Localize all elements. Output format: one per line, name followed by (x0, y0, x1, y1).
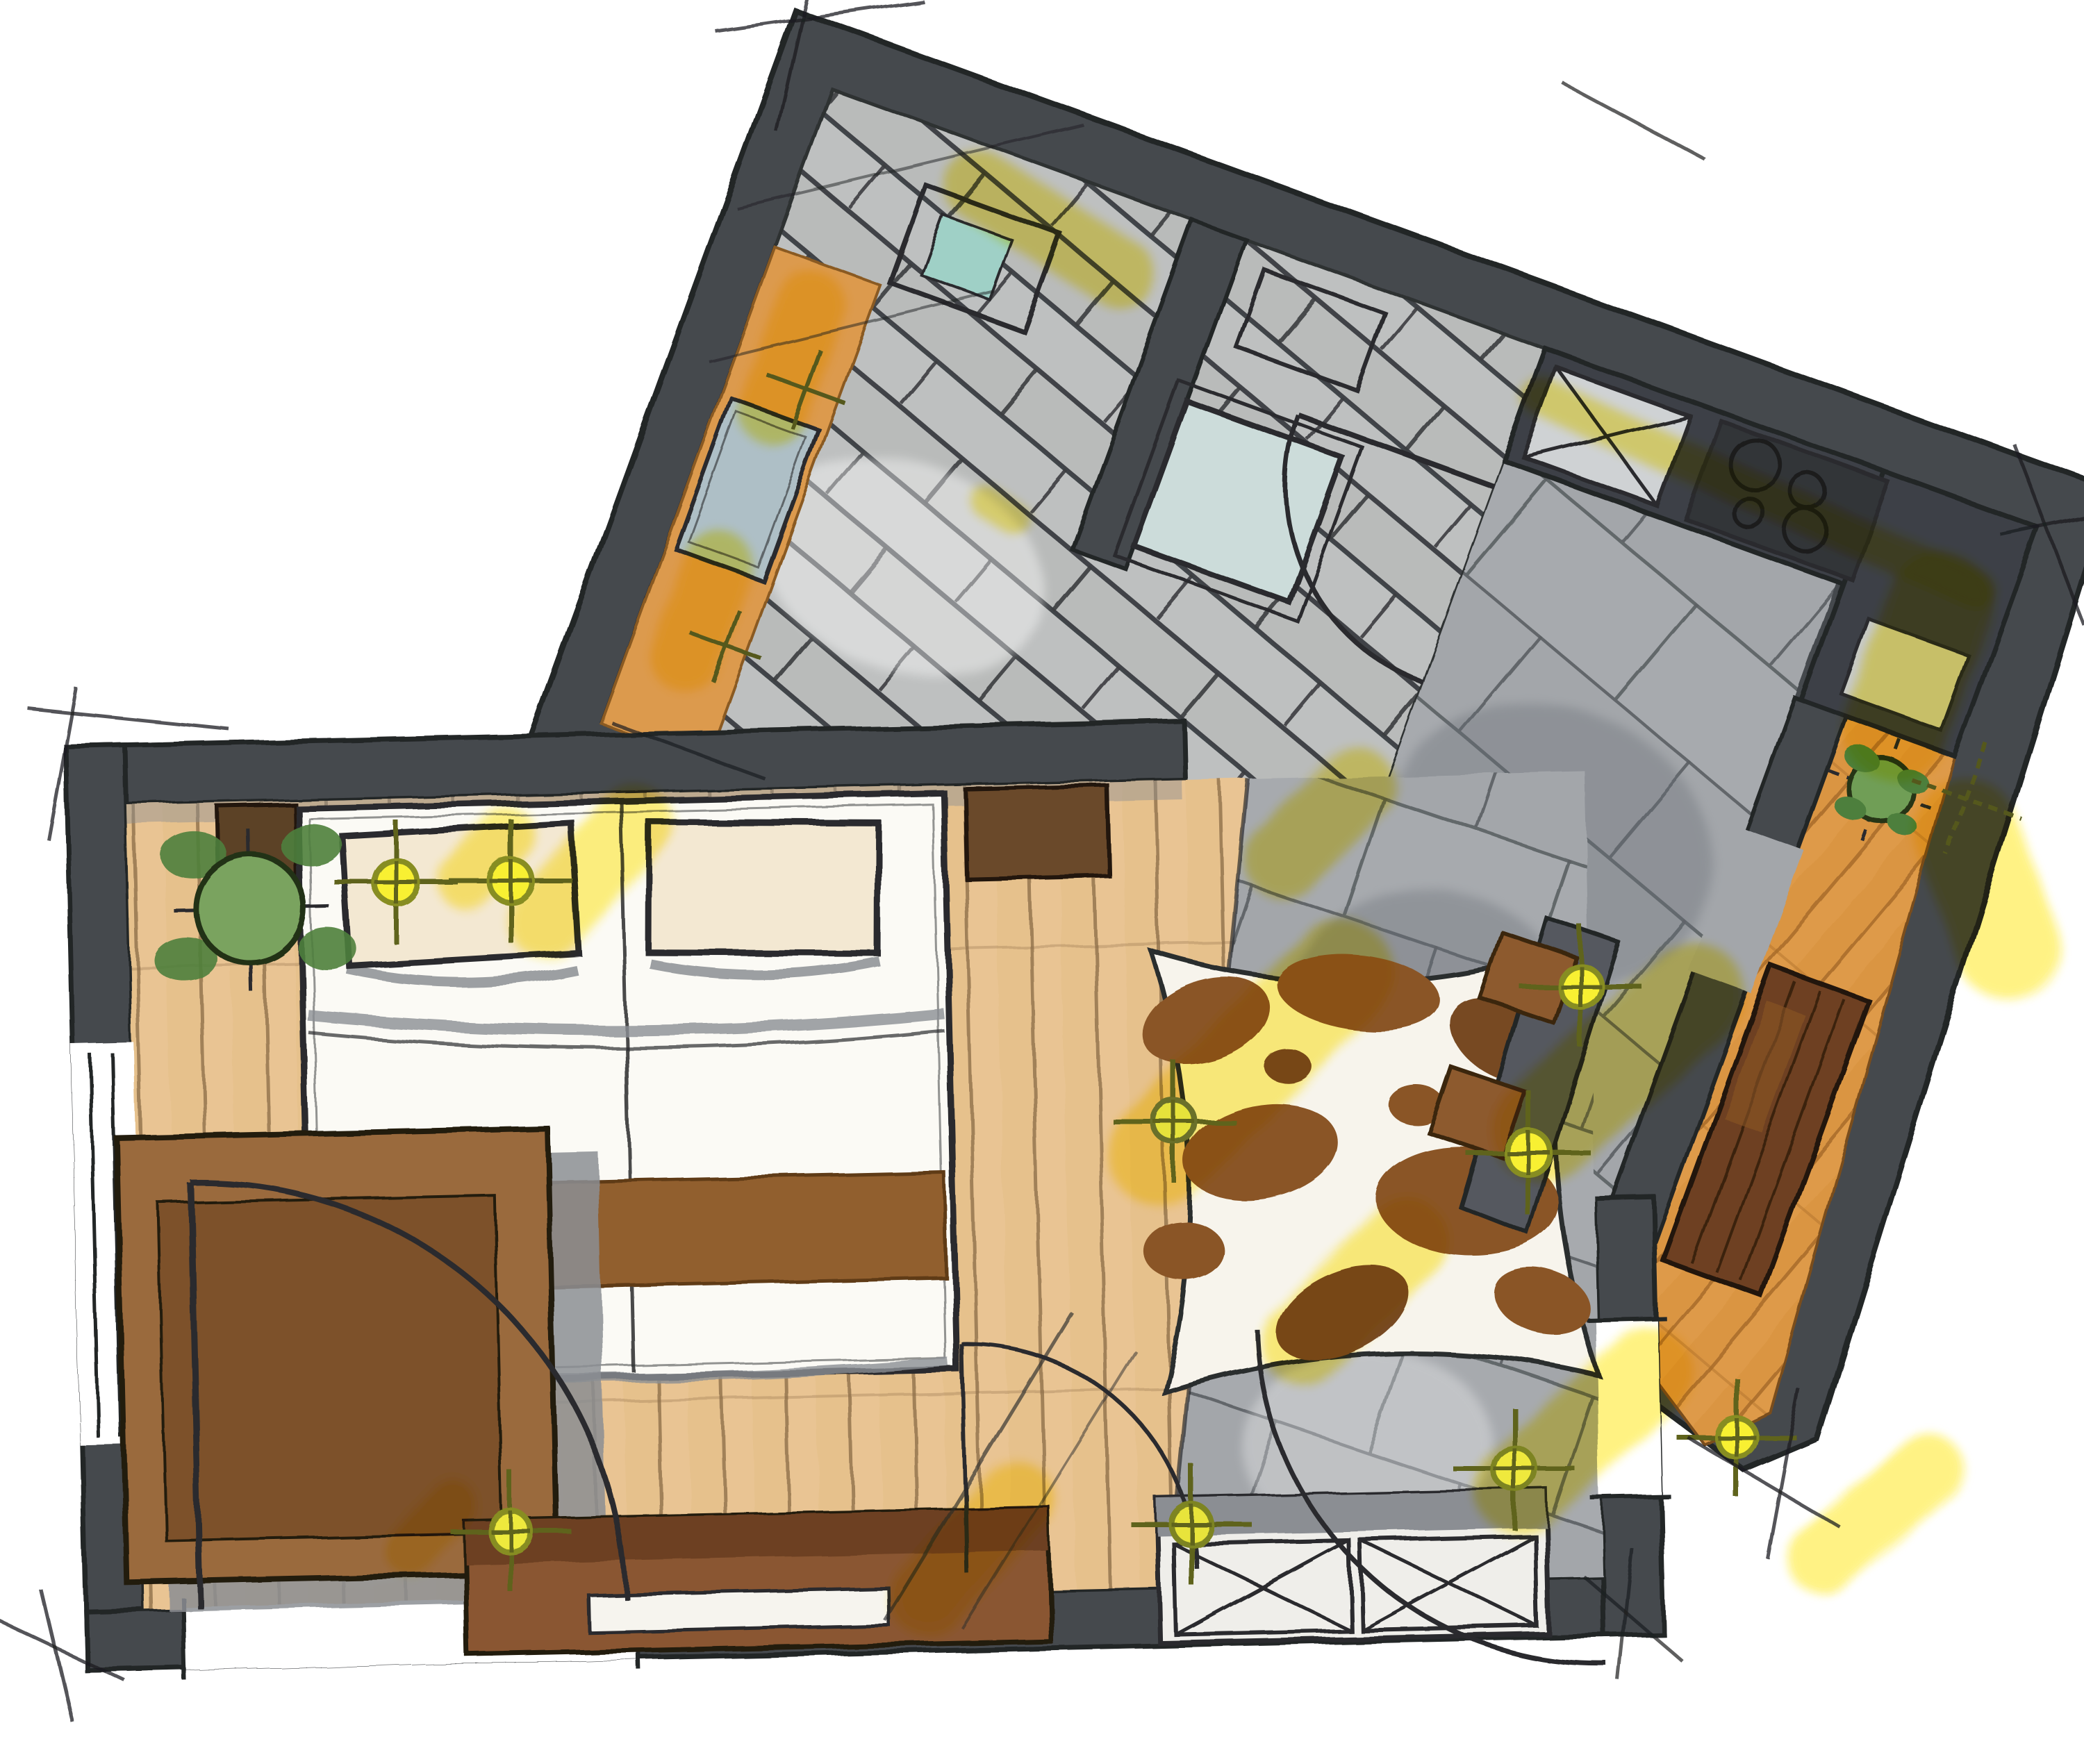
door-jamb (1591, 1497, 1671, 1499)
door-jamb (1587, 1319, 1667, 1321)
plant-pot (195, 854, 306, 964)
headboard-cabinet-right (965, 785, 1109, 879)
floor-plan-sketch (0, 0, 2084, 1764)
floor-plan-canvas (0, 0, 2084, 1764)
pillow-right (649, 822, 879, 954)
sideboard-drawer (588, 1588, 889, 1632)
lower-wing (64, 710, 1674, 1698)
